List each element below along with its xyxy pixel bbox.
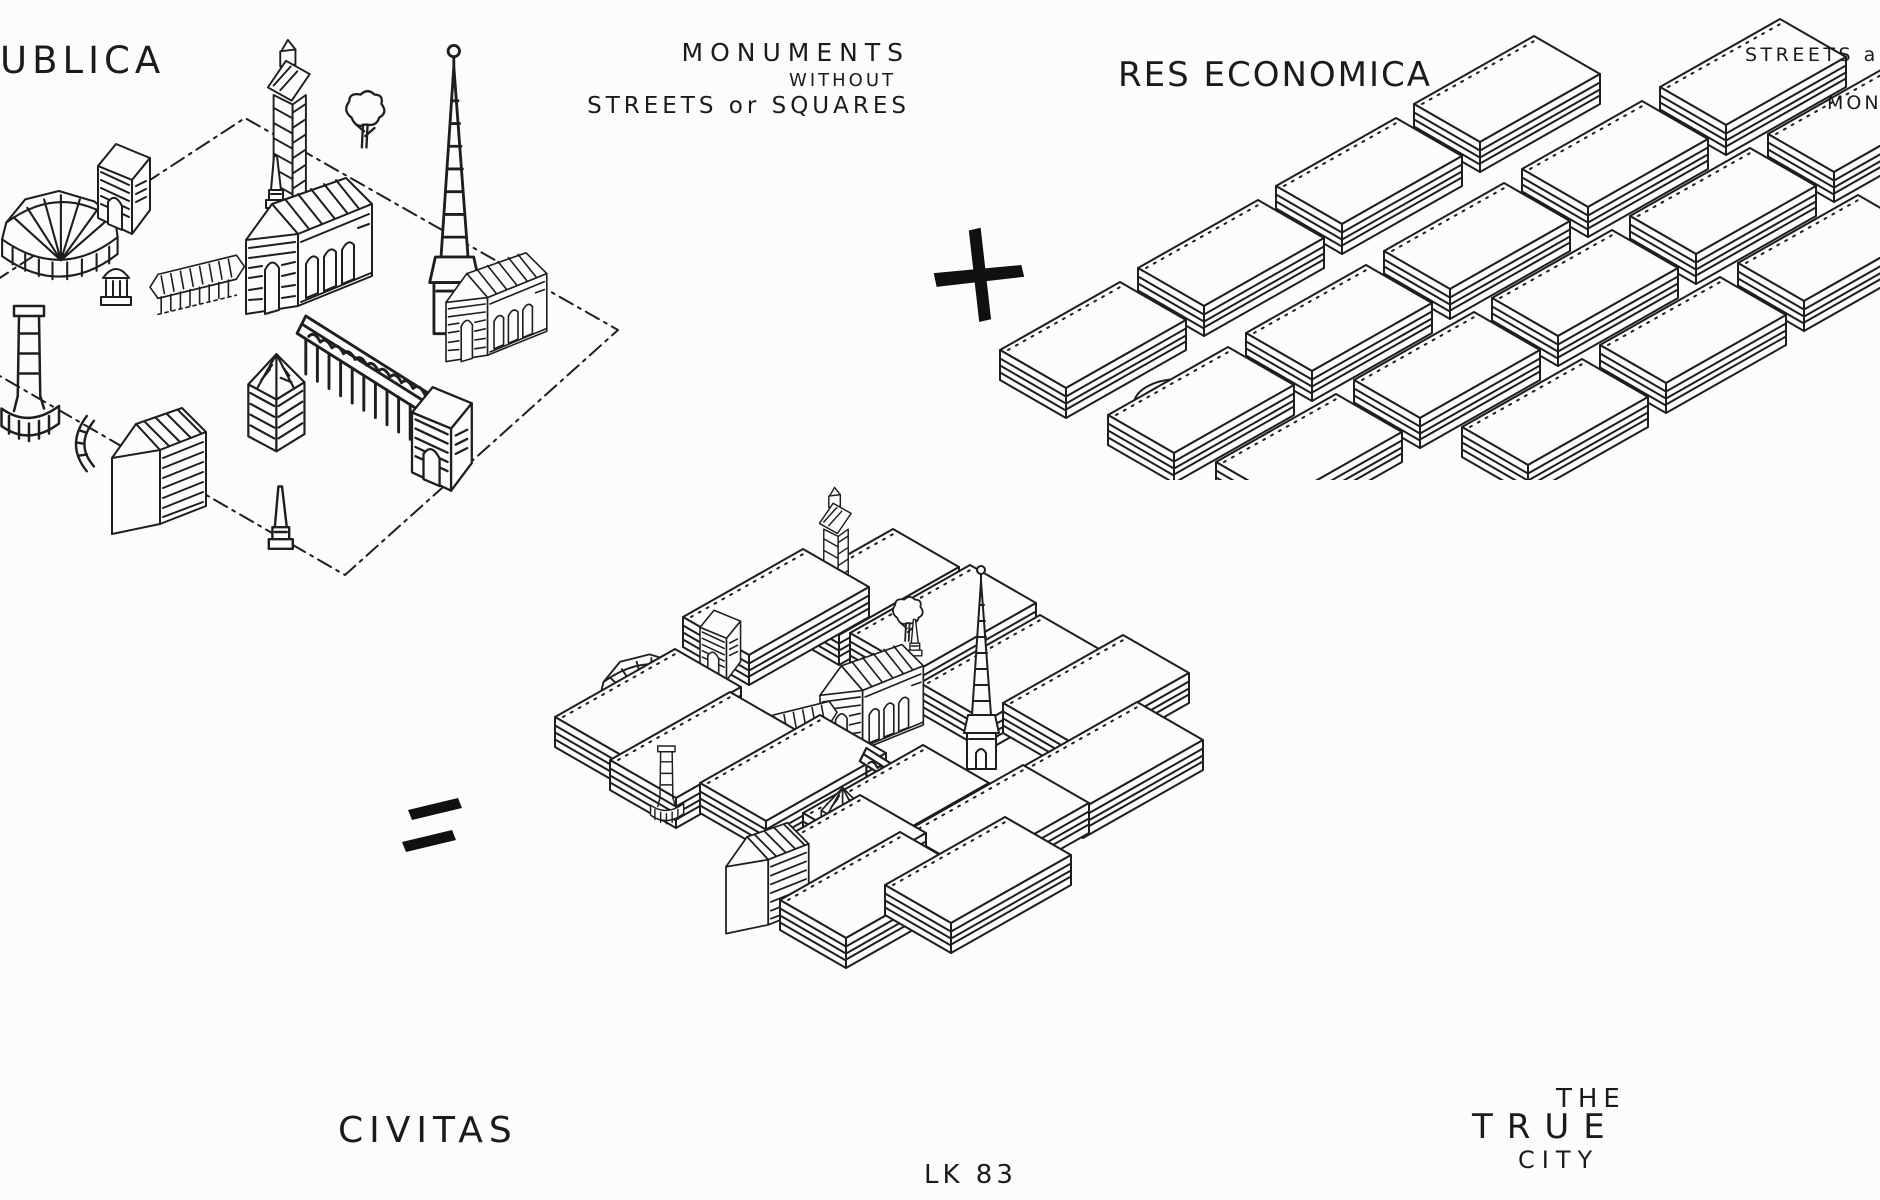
monument-colonnade	[150, 255, 244, 314]
monument-tempietto	[101, 269, 131, 305]
monument-pyramid-house	[248, 354, 304, 451]
caption-line-monuments-clipped: MON	[1827, 94, 1880, 114]
equals-sign	[392, 788, 482, 868]
ground-plane-outline	[0, 118, 618, 575]
res-publica-caption: MONUMENTS WITHOUT STREETS or SQUARES	[560, 38, 910, 119]
tree	[346, 91, 384, 147]
caption-line-true: TRUE	[1472, 1110, 1619, 1146]
res-publica-title: UBLICA	[0, 42, 165, 81]
caption-line-city: CITY	[1518, 1148, 1599, 1173]
krier-city-diagram: { "panels": { "res_publica": { "title": …	[0, 0, 1880, 1200]
caption-line-monuments: MONUMENTS	[560, 38, 910, 67]
caption-line-streets-clipped: STREETS a	[1745, 46, 1879, 66]
plus-sign	[920, 218, 1040, 338]
monument-victory-column	[2, 306, 60, 441]
artist-signature: LK 83	[924, 1162, 1017, 1189]
monument-gable-house	[112, 408, 206, 534]
caption-line-without: WITHOUT	[560, 67, 910, 93]
res-economica-title: RES ECONOMICA	[1118, 58, 1432, 94]
monument-triumphal-arch-2	[412, 387, 472, 491]
caption-line-streets-squares: STREETS or SQUARES	[560, 93, 910, 119]
monument-basilica	[246, 178, 372, 314]
monument-triumphal-arch	[98, 144, 150, 234]
civitas-title: CIVITAS	[338, 1112, 518, 1150]
monument-obelisk-2	[269, 486, 293, 548]
civitas-drawing	[540, 460, 1340, 1160]
